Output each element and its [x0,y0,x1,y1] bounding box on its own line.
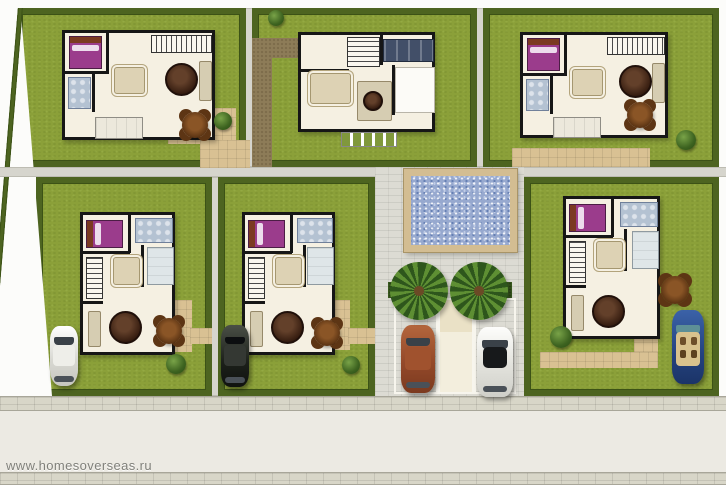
kitchen-counter [307,247,334,285]
staircase [151,35,212,53]
garden-table-villa-6 [661,276,689,304]
staircase [607,37,665,55]
car-roof [405,347,431,370]
bedroom-bed [569,204,606,232]
interior-wall [550,76,553,114]
bedroom-bed [248,220,285,248]
interior-wall [566,235,613,238]
red-car [401,325,435,393]
bathroom [68,77,91,109]
bedroom-bed [527,38,560,71]
garden-table-villa-5 [314,320,340,346]
porch-steps [341,132,397,147]
interior-wall [303,245,306,287]
car-rear-window [406,382,429,388]
kitchen-counter [632,231,659,269]
white-car [50,326,78,386]
bush [342,356,360,374]
sidewalk-lower [0,472,726,485]
bathroom [135,218,173,243]
interior-wall [83,301,103,304]
interior-wall [301,69,349,72]
dining-table [275,257,302,285]
right-margin [719,0,726,388]
walkway-vertical-3 [212,177,218,396]
staircase [347,37,380,67]
bedroom-bed [86,220,123,248]
interior-wall [106,33,109,73]
interior-wall [128,215,131,253]
bush [550,326,572,348]
car-windshield [225,337,245,344]
kitchen-counter [147,247,174,285]
car-cabin [676,332,700,366]
sofa [652,63,665,103]
path-villa-4 [190,328,212,344]
dining-table [572,69,603,96]
car-windshield [54,337,74,344]
sofa [250,311,263,347]
path-villa-2-side [252,38,272,167]
staircase [569,241,586,283]
kitchen-counter [553,117,601,138]
car-roof [483,347,508,368]
swimming-pool [404,169,517,252]
interior-wall [564,35,567,75]
interior-wall [245,301,265,304]
sidewalk-upper [0,396,726,411]
lounge-table [363,91,383,111]
staircase [248,257,265,299]
garden-table-villa-1 [182,112,208,138]
lounge-table [109,311,142,344]
villa-6-floorplan [563,196,660,339]
pool-water [411,176,510,245]
walkway-vertical-2 [477,8,483,167]
white-room [395,67,435,113]
car-roof [224,345,245,366]
bush [166,354,186,374]
black-car [221,325,249,387]
staircase [86,257,103,299]
interior-wall [83,251,130,254]
interior-wall [65,71,109,74]
blue-convertible [672,310,704,384]
interior-wall [611,199,614,237]
watermark: www.homesoverseas.ru [6,458,152,473]
interior-wall [141,245,144,287]
garden-table-villa-3 [627,102,653,128]
interior-wall [624,229,627,271]
walkway-horizontal [0,167,726,177]
bush [676,130,696,150]
dining-table [113,257,140,285]
lounge-table [165,63,198,96]
interior-wall [290,215,293,253]
interior-wall [245,251,292,254]
bush [214,112,232,130]
lounge-table [592,295,625,328]
bathroom [297,218,333,243]
path-villa-5 [348,328,375,344]
path-villa-6-horizontal [540,352,658,368]
car-roof [53,345,74,365]
site-plan: www.homesoverseas.ru [0,0,726,485]
path-villa-1 [200,140,250,168]
interior-wall [92,74,95,112]
dining-table [596,241,623,269]
car-rear-window [483,386,508,392]
garden-table-villa-4 [156,318,182,344]
white-car-parked [477,327,513,397]
bathroom [526,79,549,111]
bedroom-bed [69,36,102,69]
kitchen-counter [95,117,143,139]
lounge-table [619,65,652,98]
car-rear-window [225,377,244,383]
lounge-table [271,311,304,344]
path-villa-3 [512,148,650,167]
sofa [199,61,212,101]
car-rear-window [54,376,73,381]
interior-wall [523,73,567,76]
villa-2-floorplan [298,32,435,132]
interior-wall [566,285,586,288]
palm-tree-1 [390,262,448,320]
palm-tree-2 [450,262,508,320]
dining-table [114,67,145,94]
dining-table [310,73,351,104]
car-windshield [406,338,431,346]
sofa [88,311,101,347]
sofa [571,295,584,331]
kitchen-counter [383,39,434,62]
bush [268,10,284,26]
bathroom [620,202,658,227]
top-margin [0,0,726,8]
